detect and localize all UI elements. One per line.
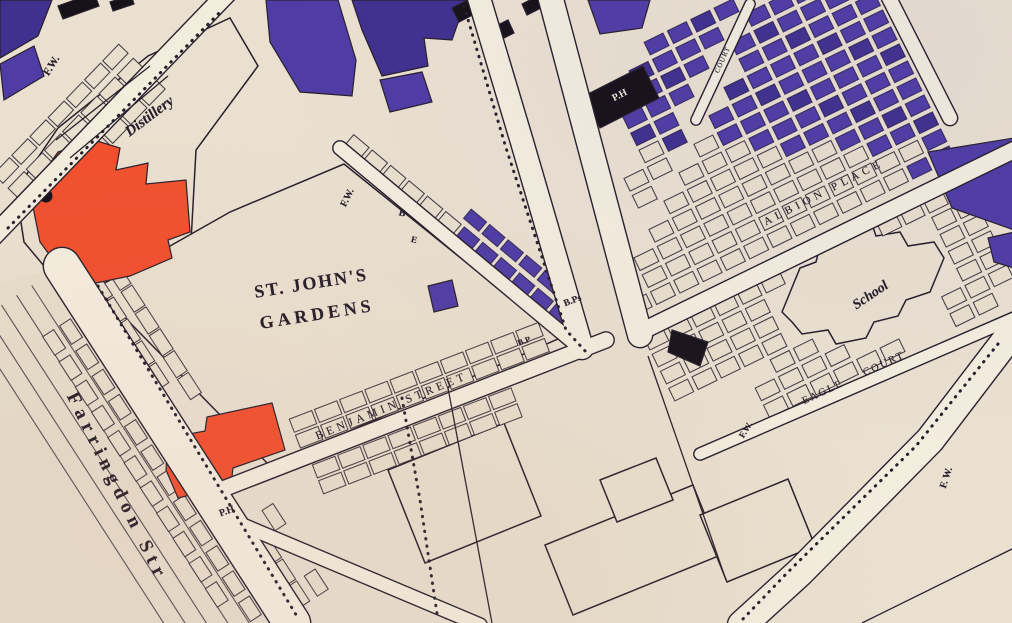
map-canvas[interactable]: F.W.DistilleryST. JOHN'SGARDENSF.W.BEP.H… — [0, 0, 1012, 623]
map-image — [0, 0, 1012, 623]
